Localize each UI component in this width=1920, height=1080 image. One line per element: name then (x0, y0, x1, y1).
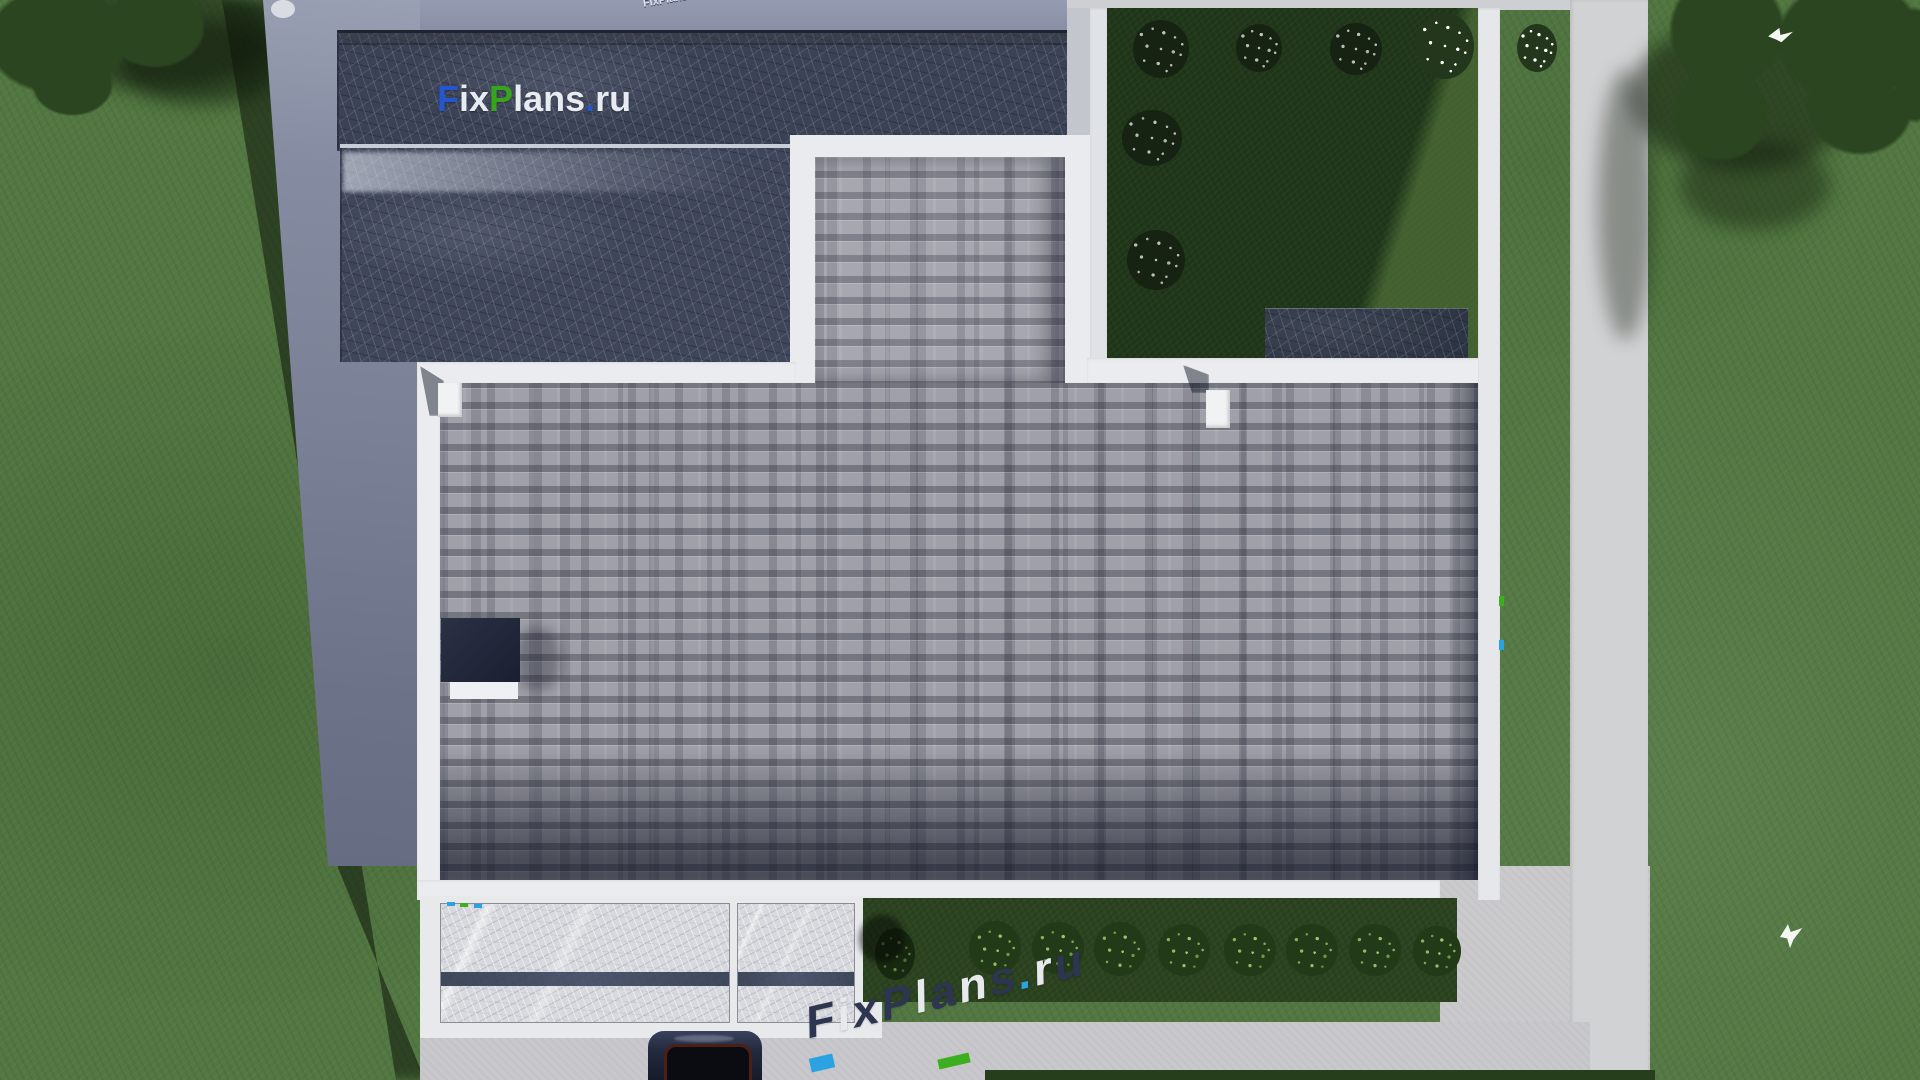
watermark-letter: . (585, 78, 595, 119)
watermark-letter: a (523, 78, 543, 119)
vent-dome (271, 0, 295, 18)
tree-canopy (1658, 55, 1783, 175)
watermark-letter: x (853, 980, 882, 1038)
watermark-letter: P (881, 972, 915, 1031)
bird-icon (1766, 26, 1794, 50)
parapet-north (417, 362, 796, 383)
hedge-bush (1094, 922, 1146, 976)
concrete-walk-north (420, 0, 1090, 33)
parapet-courtyard-south (1087, 358, 1498, 383)
watermark-letter: u (1054, 933, 1086, 992)
watermark-speck (460, 903, 468, 907)
watermark-letter: r (595, 78, 609, 119)
hedge-bush (1286, 924, 1338, 976)
chimney (438, 383, 462, 417)
watermark-speck (447, 902, 455, 906)
pergola-slab (1265, 308, 1468, 358)
flower-shrub (1133, 20, 1189, 78)
tree-canopy (20, 45, 125, 125)
watermark-speck (474, 904, 482, 908)
watermark-speck (1499, 596, 1504, 606)
watermark-letter: a (930, 962, 959, 1020)
terrace-dark-band (738, 972, 854, 986)
aerial-render: FixPlans.ru (0, 0, 1920, 1080)
watermark-letter: i (459, 78, 469, 119)
flower-shrub (1127, 230, 1185, 290)
chimney (1206, 390, 1230, 428)
lawn-sliver-south (985, 1070, 1655, 1080)
parapet-shaded (1067, 8, 1090, 135)
watermark-letter: F (437, 78, 459, 119)
flower-shrub (1416, 13, 1474, 79)
watermark-letter: F (806, 990, 838, 1049)
watermark-letter: P (489, 78, 513, 119)
parapet-west (417, 362, 440, 900)
flower-shrub (1122, 110, 1182, 166)
car-windshield (664, 1044, 752, 1080)
watermark-letter: l (513, 78, 523, 119)
roof-hatch-face (450, 682, 518, 699)
hedge-bush (1413, 926, 1461, 976)
skylight-shadow (516, 628, 560, 690)
car (648, 1031, 762, 1080)
watermark-speck (1499, 640, 1504, 650)
watermark-letter: n (958, 955, 990, 1014)
terrace-dark-band (441, 972, 729, 986)
flower-shrub (1517, 24, 1557, 72)
watermark-letter: l (914, 968, 931, 1023)
watermark-letter: s (989, 948, 1018, 1006)
roof-shade-east (1448, 383, 1478, 880)
watermark-letter: n (543, 78, 565, 119)
roof-hatch (441, 618, 520, 682)
flower-shrub (1236, 24, 1282, 72)
terrace-canopy-left (440, 903, 730, 1023)
parapet-courtyard-west (1090, 8, 1107, 365)
bird-icon (1776, 922, 1806, 950)
watermark-letter: . (1018, 945, 1035, 1000)
hedge-bush (1158, 924, 1210, 976)
roof-glare (343, 152, 743, 192)
hedge-bush (1349, 924, 1401, 976)
roof-logo-watermark: FixPlans.ru (437, 81, 631, 117)
watermark-letter: r (1033, 940, 1055, 996)
parapet-east (1478, 8, 1500, 900)
watermark-letter: x (469, 78, 489, 119)
flower-shrub (1330, 23, 1382, 75)
tower-roof-highlight (815, 157, 1065, 383)
watermark-letter: u (609, 78, 631, 119)
roof-shade-south (440, 747, 1478, 880)
watermark-letter: i (837, 986, 854, 1041)
car-roof-highlight (674, 1035, 734, 1042)
watermark-letter: s (565, 78, 585, 119)
hedge-bush (1224, 924, 1276, 976)
